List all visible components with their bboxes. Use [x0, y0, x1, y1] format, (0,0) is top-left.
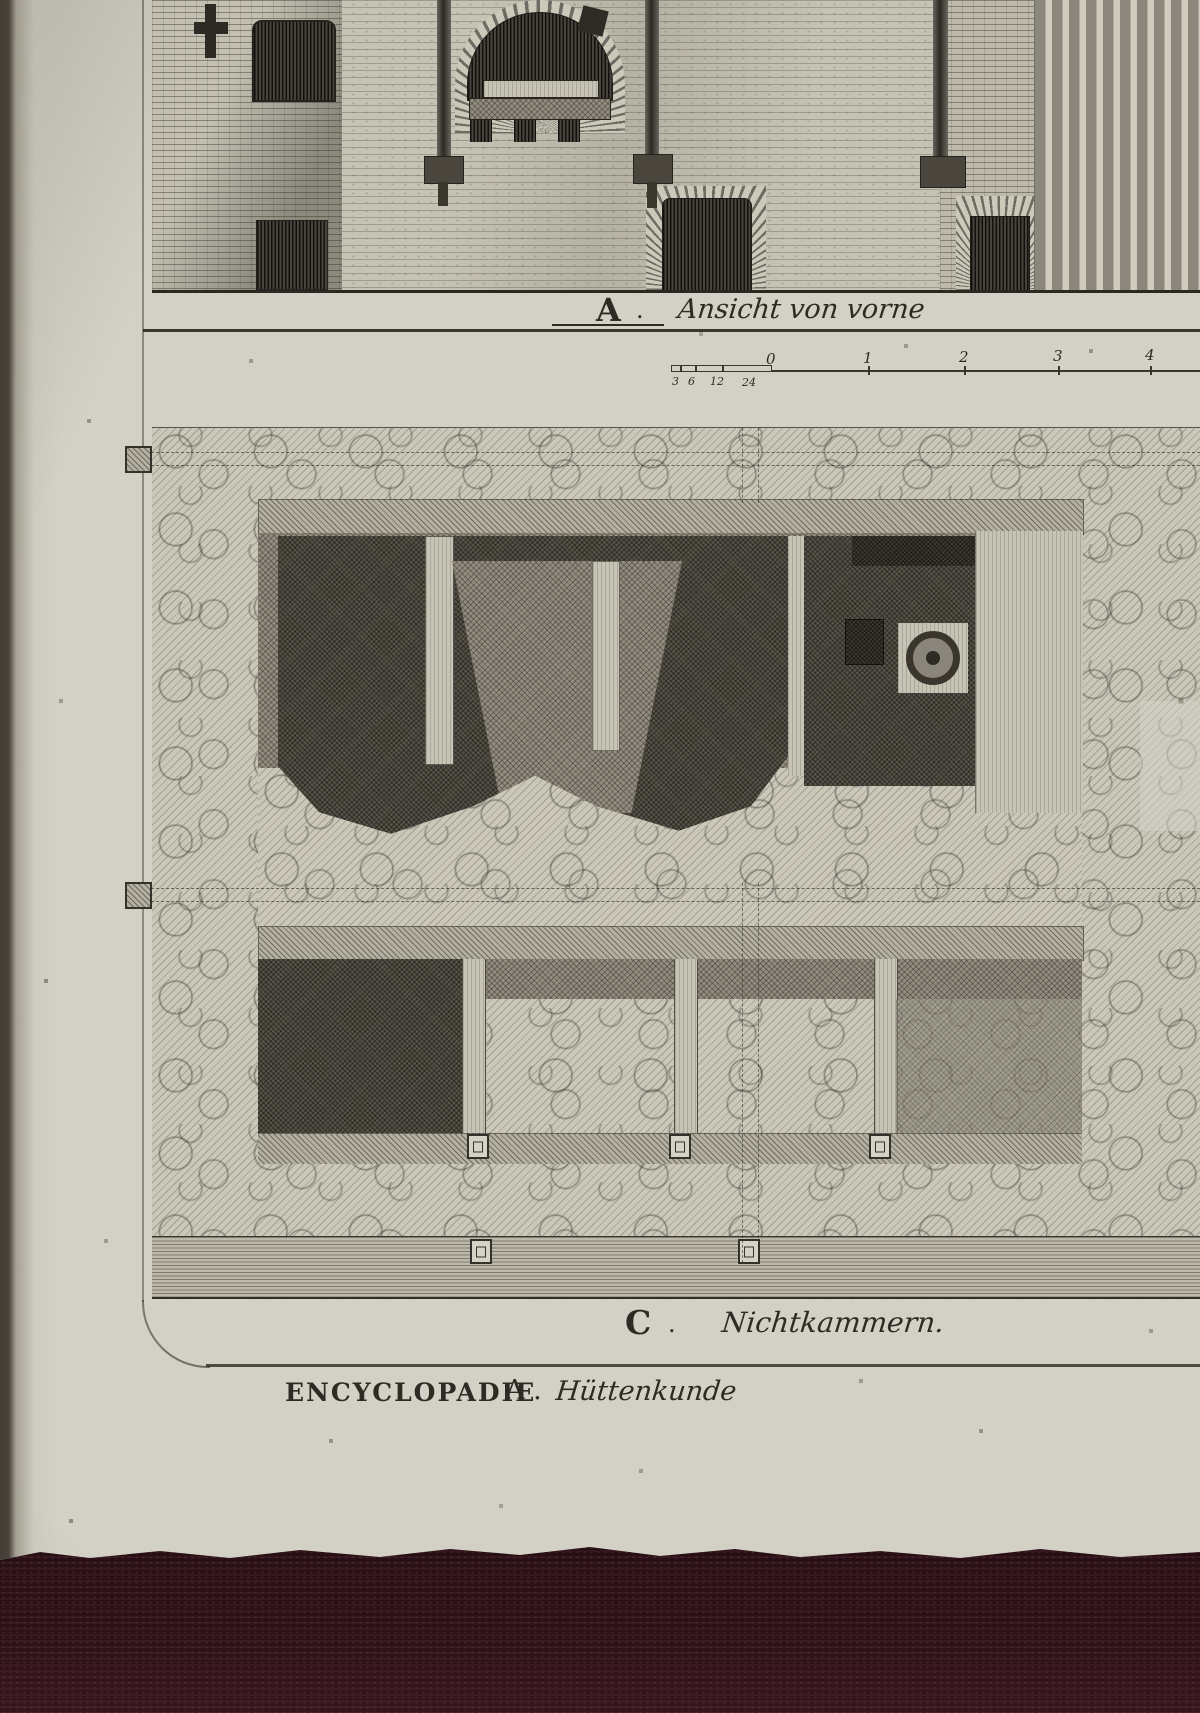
plan-peg-row2-1	[470, 1239, 492, 1264]
plan-lower-divider-3	[874, 959, 898, 1133]
scale-tick-minor	[695, 366, 697, 371]
flue-dashed-line-lower-1	[126, 888, 1200, 889]
view-c-letter: C	[625, 1303, 651, 1342]
caption-a-underline	[552, 324, 664, 326]
plan-light-strip	[592, 561, 620, 751]
flue-dashed-line-upper-2	[126, 465, 1200, 466]
view-a-frame-rule	[143, 329, 1200, 332]
scale-tick-major-2	[964, 366, 966, 375]
furnace-foot-1	[470, 120, 492, 142]
plan-divider-strip	[788, 536, 804, 776]
scale-minor-label-12: 12	[710, 375, 724, 388]
stack-pipe-1	[437, 0, 451, 158]
plan-round-opening-core	[926, 651, 940, 665]
plan-lower-chamber-mixed	[896, 999, 1082, 1133]
plan-vertical-dashed-line	[758, 883, 759, 1263]
view-a-caption: Ansicht von vorne	[676, 294, 926, 325]
engraving-view-c-plan	[152, 427, 1200, 1299]
furnace-shelf	[483, 80, 599, 98]
stack-pipe-3	[933, 0, 948, 158]
view-c-separator: .	[668, 1310, 676, 1338]
plan-small-dark-square	[845, 619, 884, 665]
plan-peg-row1-1	[467, 1134, 489, 1159]
view-a-separator: .	[636, 296, 644, 324]
paper-specks	[0, 0, 2, 2]
plan-mid-wall-band	[258, 926, 1084, 961]
scale-tick-minor	[722, 366, 724, 371]
wall-far-right	[1034, 0, 1200, 290]
pipe-1-bracket	[424, 156, 464, 184]
scale-minor-label-3: 3	[672, 375, 679, 388]
paper-sheet: A . Ansicht von vorne 3 6 12 24 0 1 2 3 …	[0, 0, 1200, 1713]
plan-light-column	[975, 531, 1083, 813]
imprint-subject: Hüttenkunde	[554, 1376, 738, 1407]
plan-light-pier	[425, 536, 454, 765]
pipe-3-bracket	[920, 156, 966, 188]
plan-top-wall-band	[258, 499, 1084, 535]
plate-border-bottom-rule	[206, 1364, 1200, 1367]
stack-pipe-2	[645, 0, 659, 156]
scale-major-label-4: 4	[1145, 346, 1155, 364]
wall-anchor-cross-horizontal	[194, 22, 228, 34]
scale-major-label-1: 1	[863, 349, 873, 367]
scale-tick-major-1	[868, 366, 870, 375]
scale-minor-label-6: 6	[688, 375, 695, 388]
furnace-foot-3	[558, 120, 580, 142]
scale-bar-subdivided-segment	[671, 365, 772, 372]
plan-lower-chamber-dark	[258, 959, 462, 1133]
flue-dashed-line-lower-2	[126, 901, 1200, 902]
plan-peg-row1-2	[669, 1134, 691, 1159]
scale-tick-major-4	[1150, 366, 1152, 375]
plan-funnel-wedge	[452, 561, 682, 813]
door-left	[256, 220, 328, 290]
pipe-1-stub	[438, 182, 448, 206]
flue-dashed-line-upper-1	[126, 452, 1200, 453]
plan-bottom-wall-band	[152, 1236, 1200, 1298]
plan-darker-block	[852, 536, 975, 566]
imprint-title: ENCYCLOPADIE	[285, 1378, 536, 1407]
furnace-foot-2	[514, 120, 536, 142]
plate-border-left	[142, 0, 144, 1302]
view-c-caption: Nichtkammern.	[720, 1306, 946, 1339]
door-2	[662, 198, 752, 292]
scale-tick-minor	[680, 366, 682, 371]
pipe-2-stub	[647, 182, 657, 208]
furnace-sill	[469, 98, 611, 120]
plan-lower-divider-2	[674, 959, 698, 1133]
flue-anchor-square-lower	[125, 882, 152, 909]
scale-tick-major-3	[1058, 366, 1060, 375]
engraving-view-a	[152, 0, 1200, 293]
imprint-letter: A .	[505, 1375, 542, 1406]
window-recess	[252, 20, 336, 102]
plan-lower-divider-1	[462, 959, 486, 1133]
scale-major-label-3: 3	[1053, 347, 1063, 365]
pipe-2-bracket	[633, 154, 673, 184]
scale-bar-main-line	[772, 370, 1200, 372]
flue-anchor-square-upper	[125, 446, 152, 473]
plan-lower-top-strip	[484, 959, 1082, 999]
plan-right-light-patch	[1140, 701, 1200, 831]
scale-zero-label: 0	[766, 350, 776, 368]
scale-major-label-2: 2	[959, 348, 969, 366]
plan-vertical-dashed-line	[742, 883, 743, 1263]
photo-of-engraving: A . Ansicht von vorne 3 6 12 24 0 1 2 3 …	[0, 0, 1200, 1713]
plate-border-corner	[142, 1300, 210, 1368]
door-3	[970, 216, 1030, 292]
plan-peg-row1-3	[869, 1134, 891, 1159]
plan-round-opening	[906, 631, 960, 685]
scale-minor-label-24: 24	[742, 376, 756, 389]
